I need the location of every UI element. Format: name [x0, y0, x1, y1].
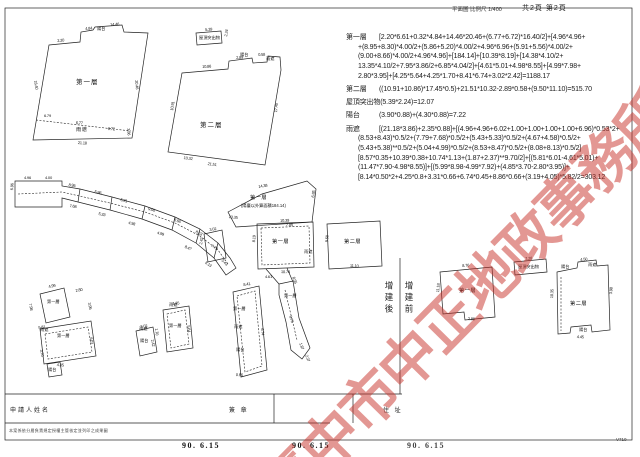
- dimension-label: 2.80: [75, 287, 83, 293]
- dimension-label: 4.00: [45, 175, 52, 180]
- dimension-label: 0.58: [258, 52, 265, 57]
- dimension-label: 7.68: [69, 203, 77, 209]
- floor-label: 增建後: [383, 281, 395, 316]
- dimension-label: 8.13: [204, 260, 213, 268]
- dimension-label: 4.50: [580, 256, 587, 262]
- dimension-label: 6.77: [76, 120, 83, 125]
- floor-label: 陽台: [561, 264, 569, 270]
- dimension-label: 10.74: [281, 269, 290, 274]
- dimension-label: 21.18: [78, 140, 87, 145]
- floor-label: 陽台: [236, 347, 244, 353]
- dimension-label: 8.53: [195, 229, 203, 237]
- dimension-label: 10.86: [202, 64, 211, 69]
- dimension-label: 8.66: [173, 217, 181, 224]
- address-label: 住 址: [383, 405, 403, 414]
- dimension-label: 2.42: [198, 237, 204, 245]
- dimension-label: 8.55: [291, 276, 298, 284]
- dimension-label: 4.25: [172, 300, 179, 306]
- dimension-label: 14.46: [110, 21, 119, 27]
- dimension-label: 21.51: [207, 161, 217, 167]
- dimension-label: 9.00: [148, 206, 156, 213]
- dimension-label: 0.66: [236, 372, 243, 377]
- floor-label: 第二層: [200, 119, 223, 129]
- floor-label: 陽台: [140, 338, 148, 344]
- dimension-label: 3.02: [209, 226, 217, 232]
- date-stamp: 90. 6.15: [292, 441, 330, 450]
- form-code: V710: [616, 437, 627, 442]
- dimension-label: 4.99: [48, 283, 56, 289]
- survey-result-sheet: 平面圖 比例尺 1/400 共2頁 第2頁 第一層[2.20*6.61+0.32…: [0, 0, 640, 457]
- certification-note: 本案係依分層負責規定授權主管核定並列印之成果圖: [9, 428, 108, 434]
- dimension-label: 10.32: [183, 155, 193, 161]
- dimension-label: 7.79: [210, 243, 219, 251]
- dimension-label: 1.70: [154, 328, 160, 336]
- dimension-label: 2.89: [236, 55, 243, 60]
- floor-label: 第一層: [459, 287, 476, 294]
- dimension-label: 5.86: [94, 189, 102, 195]
- floor-label: 雨遮: [234, 324, 242, 330]
- dimension-label: 7.98: [28, 303, 34, 311]
- dimension-label: 6.01: [89, 337, 95, 344]
- floor-label: 陽台: [579, 327, 587, 333]
- dimension-label: 10.91: [169, 101, 175, 111]
- floor-label: 第一層: [272, 238, 289, 245]
- dimension-label: 7.28: [525, 256, 532, 261]
- floor-label: 雨遮: [304, 249, 312, 255]
- dimension-label: 5.81: [38, 324, 46, 330]
- floor-label: 雨遮: [76, 126, 87, 133]
- dimension-label: 2.37: [304, 354, 311, 362]
- dimension-label: 2.88: [468, 316, 475, 321]
- dimension-label: 3.02: [140, 323, 148, 329]
- dimension-label: 13.35: [228, 214, 237, 220]
- dimension-label: 4.99: [157, 230, 165, 237]
- floor-label: 第一層: [47, 299, 60, 305]
- dimension-label: 5.64: [186, 325, 192, 333]
- floor-label: 屋頂突出物: [518, 264, 539, 270]
- dimension-label: 14.38: [258, 183, 268, 189]
- dimension-label: 20.46: [134, 80, 140, 89]
- dimension-label: 16.40: [33, 80, 39, 90]
- dimension-label: 4.61: [265, 274, 272, 279]
- dimension-label: 6.85: [310, 190, 316, 198]
- dimension-label: 3.98: [608, 287, 614, 294]
- dimension-label: 2.42: [150, 339, 156, 347]
- dimension-label: 2.24: [223, 29, 229, 37]
- dimension-label: 10.35: [549, 289, 554, 298]
- dimension-label: 11.10: [350, 263, 359, 268]
- floor-label: 雨遮: [588, 262, 596, 268]
- dimension-label: 4.45: [577, 334, 584, 339]
- plan-annotation-layer: 第一層雨遮陽台第二層陽台雨遮屋頂突出物第一層(陽臺以外算面積184.14)第一層…: [0, 0, 640, 457]
- dimension-label: 8.19: [251, 235, 257, 242]
- floor-label: 增建前: [403, 281, 415, 316]
- floor-label: 第二層: [344, 238, 361, 245]
- floor-label: 雨遮: [266, 56, 274, 62]
- dimension-label: 5.43: [221, 258, 230, 266]
- dimension-label: 2.20: [57, 37, 64, 43]
- dimension-label: 8.47: [184, 244, 192, 251]
- signature-label: 簽 章: [229, 405, 249, 414]
- dimension-label: 1.87: [298, 342, 305, 350]
- dimension-label: 6.96: [9, 183, 15, 190]
- dimension-label: 6.74: [260, 328, 266, 335]
- dimension-label: 9.70: [288, 315, 295, 323]
- floor-label: 陽台: [48, 367, 56, 373]
- dimension-label: 4.96: [24, 175, 31, 180]
- dimension-label: 7.95: [286, 222, 293, 227]
- floor-label: (陽臺以外算面積184.14): [241, 203, 286, 209]
- dimension-label: 4.58: [128, 220, 136, 226]
- dimension-label: 8.41: [243, 281, 251, 287]
- floor-label: 第一層: [233, 306, 246, 312]
- dimension-label: 11.18: [435, 283, 441, 292]
- dimension-label: 6.72: [108, 126, 115, 131]
- floor-label: 第一層: [284, 293, 297, 299]
- dimension-label: 10.39: [280, 218, 289, 223]
- dimension-label: 3.95: [87, 302, 93, 310]
- applicant-name-label: 申請人姓名: [10, 405, 50, 414]
- dimension-label: 8.95: [68, 182, 76, 188]
- dimension-label: 5.33: [98, 211, 106, 217]
- dimension-label: 17.45: [273, 103, 279, 112]
- floor-label: 第一層: [250, 194, 267, 201]
- floor-label: 第一層: [76, 76, 99, 86]
- floor-label: 第二層: [570, 300, 587, 307]
- dimension-label: 8.76: [462, 263, 469, 268]
- floor-label: 第一層: [169, 323, 182, 329]
- dimension-label: 3.86: [126, 128, 132, 135]
- dimension-label: 4.85: [57, 362, 64, 368]
- date-stamp: 90. 6.15: [182, 441, 220, 450]
- dimension-label: 9.50: [324, 235, 330, 242]
- dimension-label: 4.84: [85, 25, 92, 31]
- floor-label: 屋頂突出物: [199, 35, 220, 41]
- floor-label: 第一層: [57, 333, 70, 339]
- dimension-label: 5.91: [120, 197, 128, 203]
- dimension-label: 6.79: [44, 113, 51, 118]
- date-stamp: 90. 6.15: [407, 441, 445, 450]
- dimension-label: 5.39: [205, 27, 212, 32]
- dimension-label: 3.70: [39, 349, 45, 357]
- floor-label: 陽台: [97, 26, 105, 32]
